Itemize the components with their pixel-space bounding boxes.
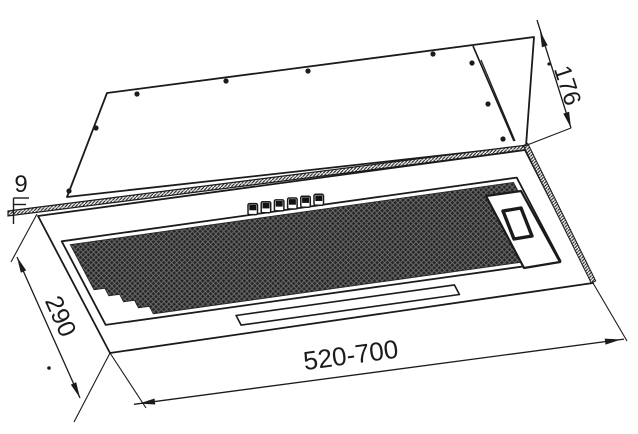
dimension-label-top-depth: 176 bbox=[548, 62, 586, 108]
extension-line bbox=[11, 214, 37, 262]
dimension-label-width-range: 520-700 bbox=[301, 334, 400, 376]
stray-dot bbox=[547, 62, 550, 65]
extension-line bbox=[110, 353, 146, 408]
extension-line bbox=[74, 353, 110, 422]
extension-line bbox=[522, 128, 571, 147]
dimension-flange-thickness: 9 bbox=[14, 171, 30, 224]
control-button bbox=[248, 204, 258, 215]
hood-technical-drawing: 176 9 290 520-700 bbox=[0, 0, 638, 434]
control-button bbox=[274, 200, 284, 211]
extension-line bbox=[593, 283, 627, 341]
arrowhead bbox=[605, 339, 621, 345]
arrowhead bbox=[71, 382, 80, 398]
stray-dot bbox=[47, 366, 51, 370]
arrowhead bbox=[563, 112, 571, 128]
control-button bbox=[261, 202, 271, 213]
arrowhead bbox=[540, 31, 548, 47]
control-button bbox=[288, 198, 298, 209]
dimension-label-flange-thickness: 9 bbox=[14, 171, 27, 198]
dimension-label-body-depth: 290 bbox=[39, 292, 82, 342]
control-button bbox=[301, 196, 311, 207]
arrowhead bbox=[17, 257, 26, 273]
control-button bbox=[314, 194, 324, 205]
drawing-svg: 176 9 290 520-700 bbox=[0, 0, 638, 434]
